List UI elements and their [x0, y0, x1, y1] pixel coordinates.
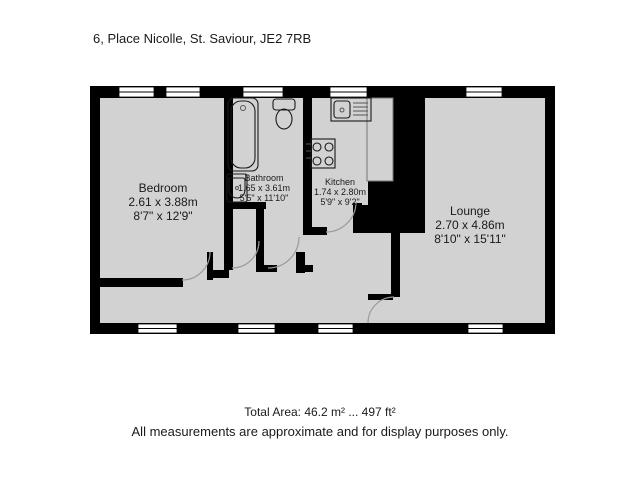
room-label-lounge: Lounge 2.70 x 4.86m 8'10" x 15'11" [434, 204, 506, 246]
room-name: Bedroom [128, 181, 197, 195]
room-size-imperial: 5'9" x 9'2" [314, 197, 366, 207]
room-size-metric: 1.74 x 2.80m [314, 187, 366, 197]
room-size-imperial: 5'5" x 11'10" [238, 193, 290, 203]
room-size-metric: 1.65 x 3.61m [238, 183, 290, 193]
room-label-bathroom: Bathroom 1.65 x 3.61m 5'5" x 11'10" [238, 173, 290, 203]
room-size-metric: 2.70 x 4.86m [434, 218, 506, 232]
room-name: Bathroom [238, 173, 290, 183]
room-label-kitchen: Kitchen 1.74 x 2.80m 5'9" x 9'2" [314, 177, 366, 207]
total-area: Total Area: 46.2 m² ... 497 ft² [0, 405, 640, 419]
room-label-bedroom: Bedroom 2.61 x 3.88m 8'7" x 12'9" [128, 181, 197, 223]
footer: Total Area: 46.2 m² ... 497 ft² All meas… [0, 405, 640, 439]
room-size-metric: 2.61 x 3.88m [128, 195, 197, 209]
room-size-imperial: 8'7" x 12'9" [128, 209, 197, 223]
room-name: Lounge [434, 204, 506, 218]
room-name: Kitchen [314, 177, 366, 187]
chimney-mass [393, 98, 425, 180]
disclaimer: All measurements are approximate and for… [0, 424, 640, 439]
room-size-imperial: 8'10" x 15'11" [434, 232, 506, 246]
